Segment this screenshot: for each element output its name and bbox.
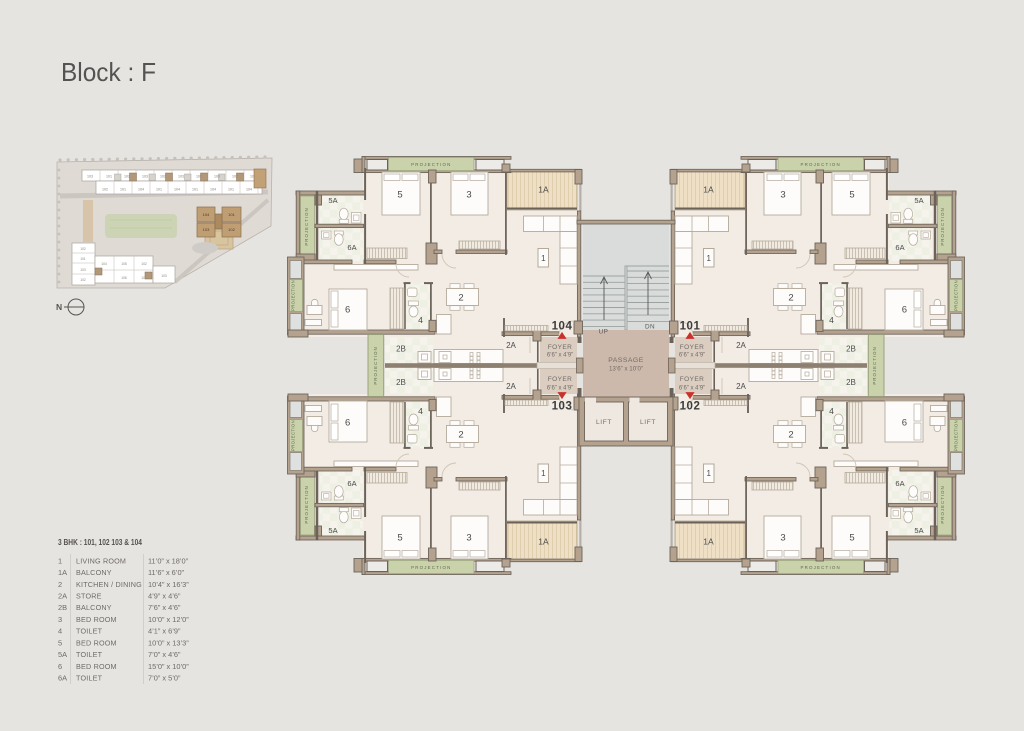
svg-text:1A: 1A — [58, 568, 67, 577]
svg-text:PROJECTION: PROJECTION — [304, 485, 309, 523]
svg-text:N: N — [56, 302, 62, 312]
svg-text:102: 102 — [141, 262, 147, 266]
svg-text:6: 6 — [345, 304, 350, 315]
svg-text:FOYER: FOYER — [548, 376, 572, 383]
svg-text:2A: 2A — [736, 341, 746, 350]
svg-text:6A: 6A — [895, 243, 904, 252]
svg-text:102: 102 — [160, 175, 166, 179]
svg-text:6’6” x 4’9”: 6’6” x 4’9” — [679, 353, 705, 359]
svg-text:1A: 1A — [703, 185, 714, 195]
svg-text:1A: 1A — [703, 537, 714, 547]
svg-text:3: 3 — [780, 532, 785, 543]
svg-text:104: 104 — [552, 321, 573, 333]
svg-text:1: 1 — [541, 469, 546, 478]
svg-text:PROJECTION: PROJECTION — [291, 420, 296, 451]
svg-text:2B: 2B — [846, 345, 856, 354]
svg-text:PROJECTION: PROJECTION — [411, 565, 451, 570]
svg-text:103: 103 — [80, 268, 86, 272]
svg-text:10’4” x 16’3”: 10’4” x 16’3” — [148, 580, 189, 589]
svg-text:5A: 5A — [328, 526, 337, 535]
svg-text:2: 2 — [788, 292, 793, 303]
svg-text:101: 101 — [156, 188, 162, 192]
svg-text:2: 2 — [458, 292, 463, 303]
svg-text:101: 101 — [228, 188, 234, 192]
svg-text:2A: 2A — [506, 382, 516, 391]
svg-text:PROJECTION: PROJECTION — [940, 207, 945, 245]
svg-text:4’1” x 6’9”: 4’1” x 6’9” — [148, 627, 181, 636]
svg-text:KITCHEN / DINING: KITCHEN / DINING — [76, 580, 142, 589]
svg-text:LIFT: LIFT — [640, 419, 656, 426]
svg-text:5: 5 — [849, 189, 854, 200]
svg-text:3: 3 — [58, 615, 62, 624]
svg-text:101: 101 — [228, 212, 235, 217]
svg-text:4’9” x 4’6”: 4’9” x 4’6” — [148, 592, 181, 601]
svg-text:101: 101 — [80, 257, 86, 261]
svg-text:10’0” x 13’3”: 10’0” x 13’3” — [148, 638, 189, 647]
svg-text:2A: 2A — [506, 341, 516, 350]
svg-text:101: 101 — [106, 175, 112, 179]
svg-text:FOYER: FOYER — [548, 344, 572, 351]
svg-text:1: 1 — [706, 469, 711, 478]
svg-text:2A: 2A — [736, 382, 746, 391]
svg-text:102: 102 — [124, 175, 130, 179]
svg-text:2B: 2B — [396, 378, 406, 387]
svg-text:LIVING ROOM: LIVING ROOM — [76, 556, 126, 565]
svg-text:TOILET: TOILET — [76, 627, 103, 636]
svg-text:104: 104 — [101, 262, 107, 266]
svg-text:PASSAGE: PASSAGE — [608, 357, 643, 364]
svg-text:102: 102 — [228, 227, 235, 232]
svg-text:6: 6 — [902, 304, 907, 315]
svg-text:BED ROOM: BED ROOM — [76, 662, 117, 671]
svg-text:PROJECTION: PROJECTION — [373, 346, 378, 384]
svg-text:6: 6 — [902, 417, 907, 428]
svg-text:103: 103 — [178, 175, 184, 179]
svg-text:10’0” x 12’0”: 10’0” x 12’0” — [148, 615, 189, 624]
svg-text:FOYER: FOYER — [680, 344, 704, 351]
svg-text:PROJECTION: PROJECTION — [411, 162, 451, 167]
svg-text:PROJECTION: PROJECTION — [801, 162, 841, 167]
svg-text:PROJECTION: PROJECTION — [801, 565, 841, 570]
svg-text:6’6” x 4’9”: 6’6” x 4’9” — [547, 385, 573, 391]
svg-text:7’0” x 5’0”: 7’0” x 5’0” — [148, 674, 181, 683]
svg-text:103: 103 — [87, 175, 93, 179]
svg-text:BALCONY: BALCONY — [76, 603, 112, 612]
svg-text:101: 101 — [680, 321, 701, 333]
svg-text:103: 103 — [552, 401, 573, 413]
svg-text:11’6” x 6’0”: 11’6” x 6’0” — [148, 568, 185, 577]
svg-text:3 BHK : 101, 102 103 & 104: 3 BHK : 101, 102 103 & 104 — [58, 537, 142, 547]
svg-text:3: 3 — [466, 532, 471, 543]
svg-text:5: 5 — [397, 532, 402, 543]
svg-text:102: 102 — [680, 401, 701, 413]
svg-text:102: 102 — [232, 175, 238, 179]
svg-text:11’0” x 18’0”: 11’0” x 18’0” — [148, 556, 189, 565]
svg-text:7’6” x 4’6”: 7’6” x 4’6” — [148, 603, 181, 612]
svg-text:102: 102 — [196, 175, 202, 179]
svg-text:102: 102 — [80, 278, 86, 282]
svg-text:DN: DN — [645, 324, 655, 331]
svg-text:2A: 2A — [58, 592, 67, 601]
svg-text:6’6” x 4’9”: 6’6” x 4’9” — [679, 385, 705, 391]
svg-text:4: 4 — [418, 406, 423, 416]
svg-text:7’0” x 4’6”: 7’0” x 4’6” — [148, 650, 181, 659]
svg-text:4: 4 — [829, 406, 834, 416]
svg-text:TOILET: TOILET — [76, 674, 103, 683]
svg-text:5: 5 — [58, 638, 62, 647]
svg-text:102: 102 — [102, 188, 108, 192]
svg-text:104: 104 — [138, 188, 144, 192]
svg-text:5: 5 — [397, 189, 402, 200]
svg-text:106: 106 — [121, 276, 127, 280]
svg-text:6A: 6A — [347, 243, 356, 252]
svg-text:6A: 6A — [58, 674, 67, 683]
svg-text:UP: UP — [599, 329, 609, 336]
svg-text:PROJECTION: PROJECTION — [940, 485, 945, 523]
svg-text:104: 104 — [246, 188, 252, 192]
svg-text:STORE: STORE — [76, 592, 102, 601]
svg-text:2: 2 — [58, 580, 62, 589]
svg-text:4: 4 — [829, 315, 834, 325]
svg-text:5A: 5A — [914, 526, 923, 535]
svg-text:1: 1 — [541, 254, 546, 263]
svg-text:PROJECTION: PROJECTION — [304, 207, 309, 245]
svg-text:5A: 5A — [914, 196, 923, 205]
svg-text:4: 4 — [58, 627, 62, 636]
svg-text:103: 103 — [142, 175, 148, 179]
svg-text:3: 3 — [780, 189, 785, 200]
svg-text:102: 102 — [80, 247, 86, 251]
svg-text:PROJECTION: PROJECTION — [954, 420, 959, 451]
svg-text:5: 5 — [849, 532, 854, 543]
svg-text:104: 104 — [203, 212, 210, 217]
svg-text:6: 6 — [58, 662, 62, 671]
svg-text:PROJECTION: PROJECTION — [291, 280, 296, 311]
svg-text:103: 103 — [161, 274, 167, 278]
svg-text:2B: 2B — [58, 603, 67, 612]
svg-text:101: 101 — [120, 188, 126, 192]
svg-text:2: 2 — [458, 429, 463, 440]
svg-text:5A: 5A — [328, 196, 337, 205]
svg-text:6: 6 — [345, 417, 350, 428]
svg-text:1A: 1A — [538, 537, 549, 547]
svg-text:Block : F: Block : F — [61, 57, 156, 87]
svg-text:4: 4 — [418, 315, 423, 325]
svg-text:LIFT: LIFT — [596, 419, 612, 426]
svg-text:BED ROOM: BED ROOM — [76, 615, 117, 624]
svg-text:13’6” x 10’0”: 13’6” x 10’0” — [609, 366, 643, 373]
svg-text:6A: 6A — [895, 479, 904, 488]
svg-text:2B: 2B — [846, 378, 856, 387]
svg-text:103: 103 — [203, 227, 210, 232]
svg-text:3: 3 — [466, 189, 471, 200]
svg-text:2: 2 — [788, 429, 793, 440]
svg-text:15’0” x 10’0”: 15’0” x 10’0” — [148, 662, 189, 671]
svg-text:PROJECTION: PROJECTION — [872, 346, 877, 384]
svg-text:1: 1 — [58, 556, 62, 565]
svg-text:FOYER: FOYER — [680, 376, 704, 383]
svg-text:TOILET: TOILET — [76, 650, 103, 659]
svg-text:6A: 6A — [347, 479, 356, 488]
svg-text:1A: 1A — [538, 185, 549, 195]
svg-text:103: 103 — [214, 175, 220, 179]
svg-text:BED ROOM: BED ROOM — [76, 638, 117, 647]
svg-text:6’6” x 4’9”: 6’6” x 4’9” — [547, 353, 573, 359]
svg-text:101: 101 — [192, 188, 198, 192]
svg-text:5A: 5A — [58, 650, 67, 659]
svg-text:PROJECTION: PROJECTION — [954, 280, 959, 311]
svg-text:BALCONY: BALCONY — [76, 568, 112, 577]
svg-text:104: 104 — [210, 188, 216, 192]
svg-text:104: 104 — [174, 188, 180, 192]
svg-text:2B: 2B — [396, 345, 406, 354]
svg-text:105: 105 — [121, 262, 127, 266]
svg-text:1: 1 — [706, 254, 711, 263]
